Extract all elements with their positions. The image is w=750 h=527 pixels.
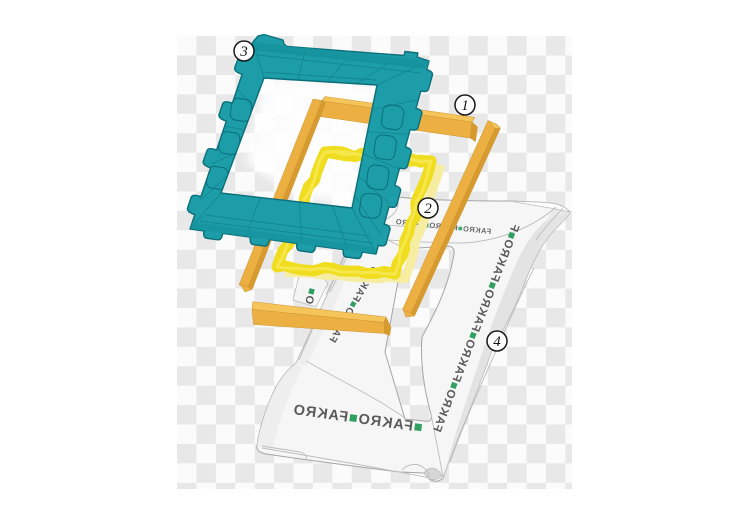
svg-text:1: 1 [461,98,469,114]
svg-text:4: 4 [493,334,501,350]
svg-text:2: 2 [424,201,432,217]
svg-text:3: 3 [239,44,248,60]
